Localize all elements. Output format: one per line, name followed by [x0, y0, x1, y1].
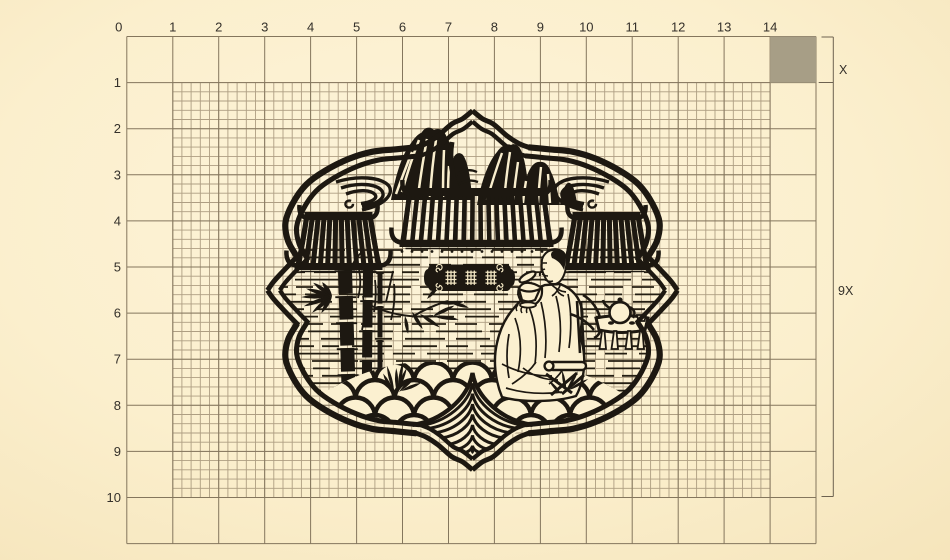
svg-text:2: 2 [215, 20, 222, 35]
svg-text:7: 7 [114, 352, 121, 367]
svg-text:X: X [839, 63, 848, 77]
svg-text:8: 8 [114, 398, 121, 413]
svg-text:6: 6 [399, 20, 406, 35]
svg-text:8: 8 [491, 20, 498, 35]
svg-text:2: 2 [114, 121, 121, 136]
svg-text:10: 10 [579, 20, 593, 35]
svg-text:0: 0 [115, 20, 122, 35]
svg-text:3: 3 [261, 20, 268, 35]
svg-text:10: 10 [107, 490, 121, 505]
svg-text:6: 6 [114, 306, 121, 321]
svg-text:9: 9 [537, 20, 544, 35]
svg-text:1: 1 [114, 75, 121, 90]
svg-text:7: 7 [445, 20, 452, 35]
svg-text:14: 14 [763, 20, 777, 35]
svg-text:5: 5 [353, 20, 360, 35]
svg-text:4: 4 [307, 20, 314, 35]
svg-text:9: 9 [114, 444, 121, 459]
svg-text:9X: 9X [838, 284, 854, 298]
svg-text:11: 11 [625, 20, 639, 35]
svg-text:1: 1 [169, 20, 176, 35]
svg-text:12: 12 [671, 20, 685, 35]
svg-text:4: 4 [114, 213, 121, 228]
svg-text:3: 3 [114, 167, 121, 182]
svg-text:5: 5 [114, 260, 121, 275]
svg-text:13: 13 [717, 20, 731, 35]
